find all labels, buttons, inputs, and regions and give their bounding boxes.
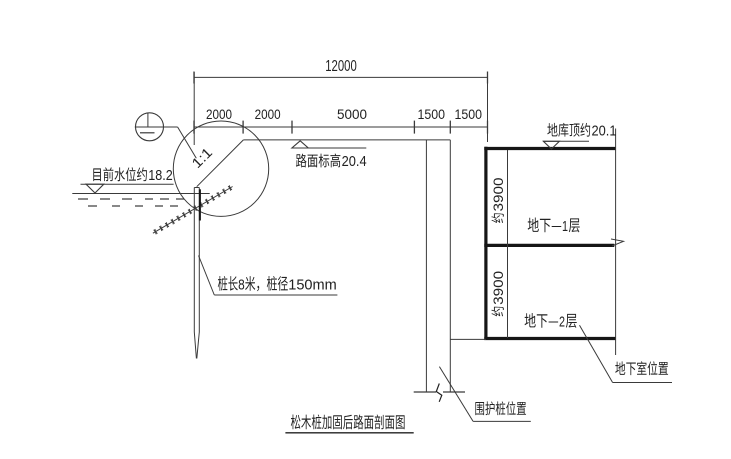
svg-text:8: 8 [238,277,245,294]
svg-text:2: 2 [559,314,565,331]
svg-text:2000: 2000 [206,106,232,122]
svg-text:18.2: 18.2 [148,167,173,184]
svg-text:150mm: 150mm [288,277,337,294]
svg-text:3900: 3900 [491,178,506,212]
svg-text:12000: 12000 [325,58,357,75]
svg-text:20.1: 20.1 [591,123,616,140]
svg-text:1500: 1500 [418,106,446,122]
svg-text:3900: 3900 [491,271,506,305]
svg-text:5000: 5000 [337,106,367,122]
svg-text:1: 1 [562,218,568,235]
svg-text:1500: 1500 [455,106,483,122]
svg-text:20.4: 20.4 [342,153,367,170]
svg-text:2000: 2000 [255,106,281,122]
